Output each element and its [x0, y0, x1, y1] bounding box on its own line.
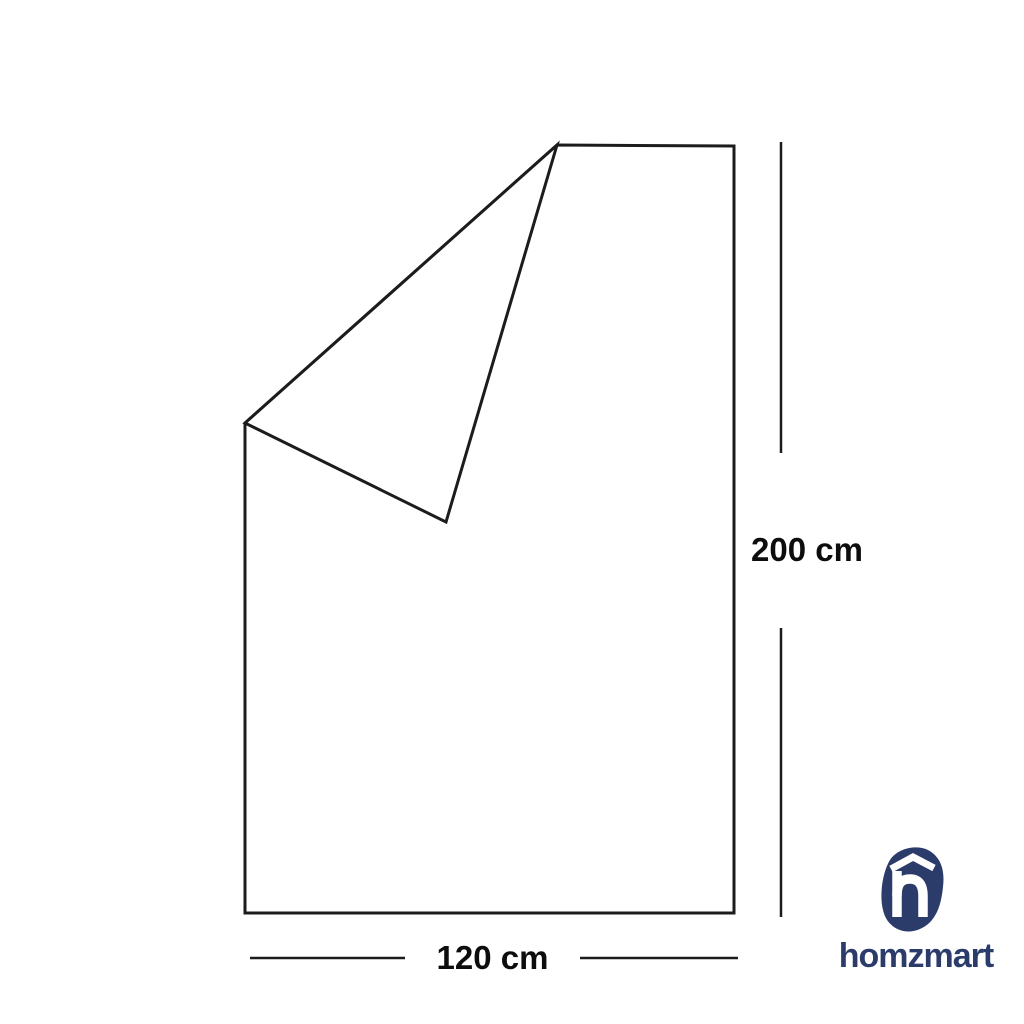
homzmart-wordmark: homzmart: [828, 938, 1004, 974]
sheet-outline: [245, 145, 734, 913]
diagram-scene: [0, 0, 1024, 1024]
homzmart-logo-icon: [881, 847, 943, 931]
width-dimension-label: 120 cm: [405, 941, 580, 975]
height-dimension-label: 200 cm: [740, 533, 874, 567]
product-dimension-image: 200 cm 120 cm homzmart: [0, 0, 1024, 1024]
